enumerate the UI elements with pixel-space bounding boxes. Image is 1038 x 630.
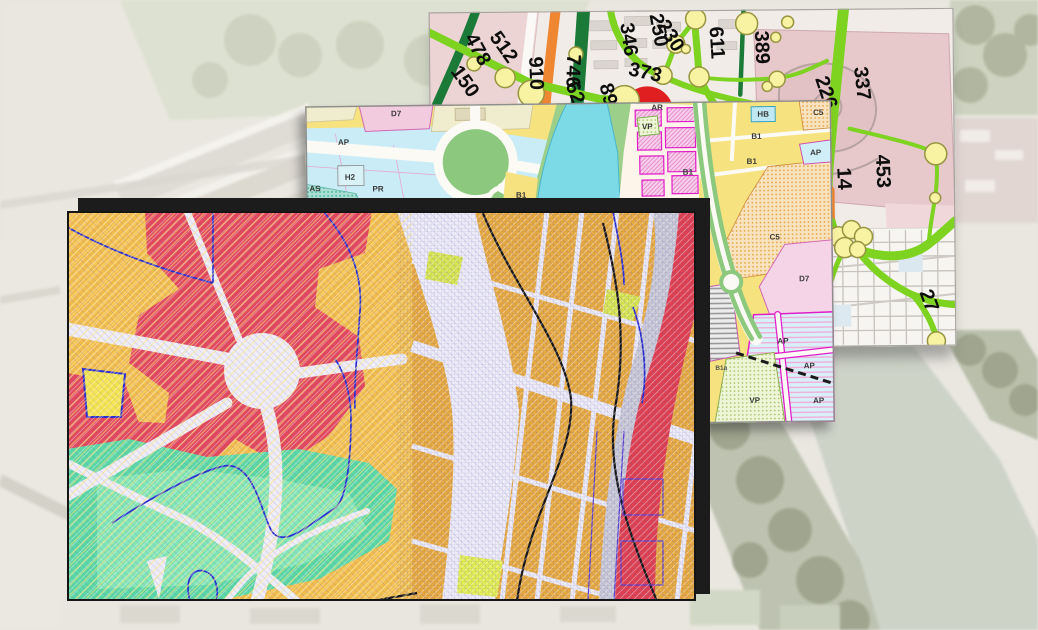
hatch-overlay: [67, 211, 696, 601]
slide-canvas: 478 150 512 910 89 746 62 346 373 250 23…: [0, 0, 1038, 630]
zone-label: B1: [747, 157, 758, 166]
zone-label: VP: [749, 396, 760, 405]
zone-label: AP: [777, 336, 789, 345]
hazard-risk-map-layer[interactable]: [67, 211, 696, 601]
zoning-historic-center: [617, 101, 704, 209]
traffic-flow-value: 389: [750, 30, 773, 64]
zone-label: B1: [751, 132, 762, 141]
zone-label: C5: [813, 108, 824, 117]
zone-label: AP: [813, 396, 825, 405]
zone-label: AS: [309, 184, 321, 193]
traffic-flow-value: 453: [871, 154, 894, 188]
zone-label: AP: [810, 148, 822, 157]
zone-label: D7: [391, 109, 402, 118]
aerial-topright-corner: [950, 0, 1038, 223]
traffic-flow-value: 910: [524, 56, 547, 90]
traffic-flow-value: 14: [832, 167, 855, 191]
zone-label: B1a: [715, 365, 727, 372]
traffic-flow-value: 337: [849, 66, 875, 102]
zone-label: AR: [651, 103, 663, 112]
zone-label: D7: [799, 274, 810, 283]
zone-label: AP: [338, 138, 350, 147]
zone-label: C5: [770, 233, 781, 242]
zone-label: VP: [642, 122, 653, 131]
zone-label: PR: [372, 184, 383, 193]
zone-label: HB: [757, 110, 769, 119]
traffic-flow-value: 611: [705, 26, 729, 60]
zone-label: AP: [804, 361, 816, 370]
zone-label: H2: [345, 173, 356, 182]
zone-label: B1: [683, 168, 694, 177]
